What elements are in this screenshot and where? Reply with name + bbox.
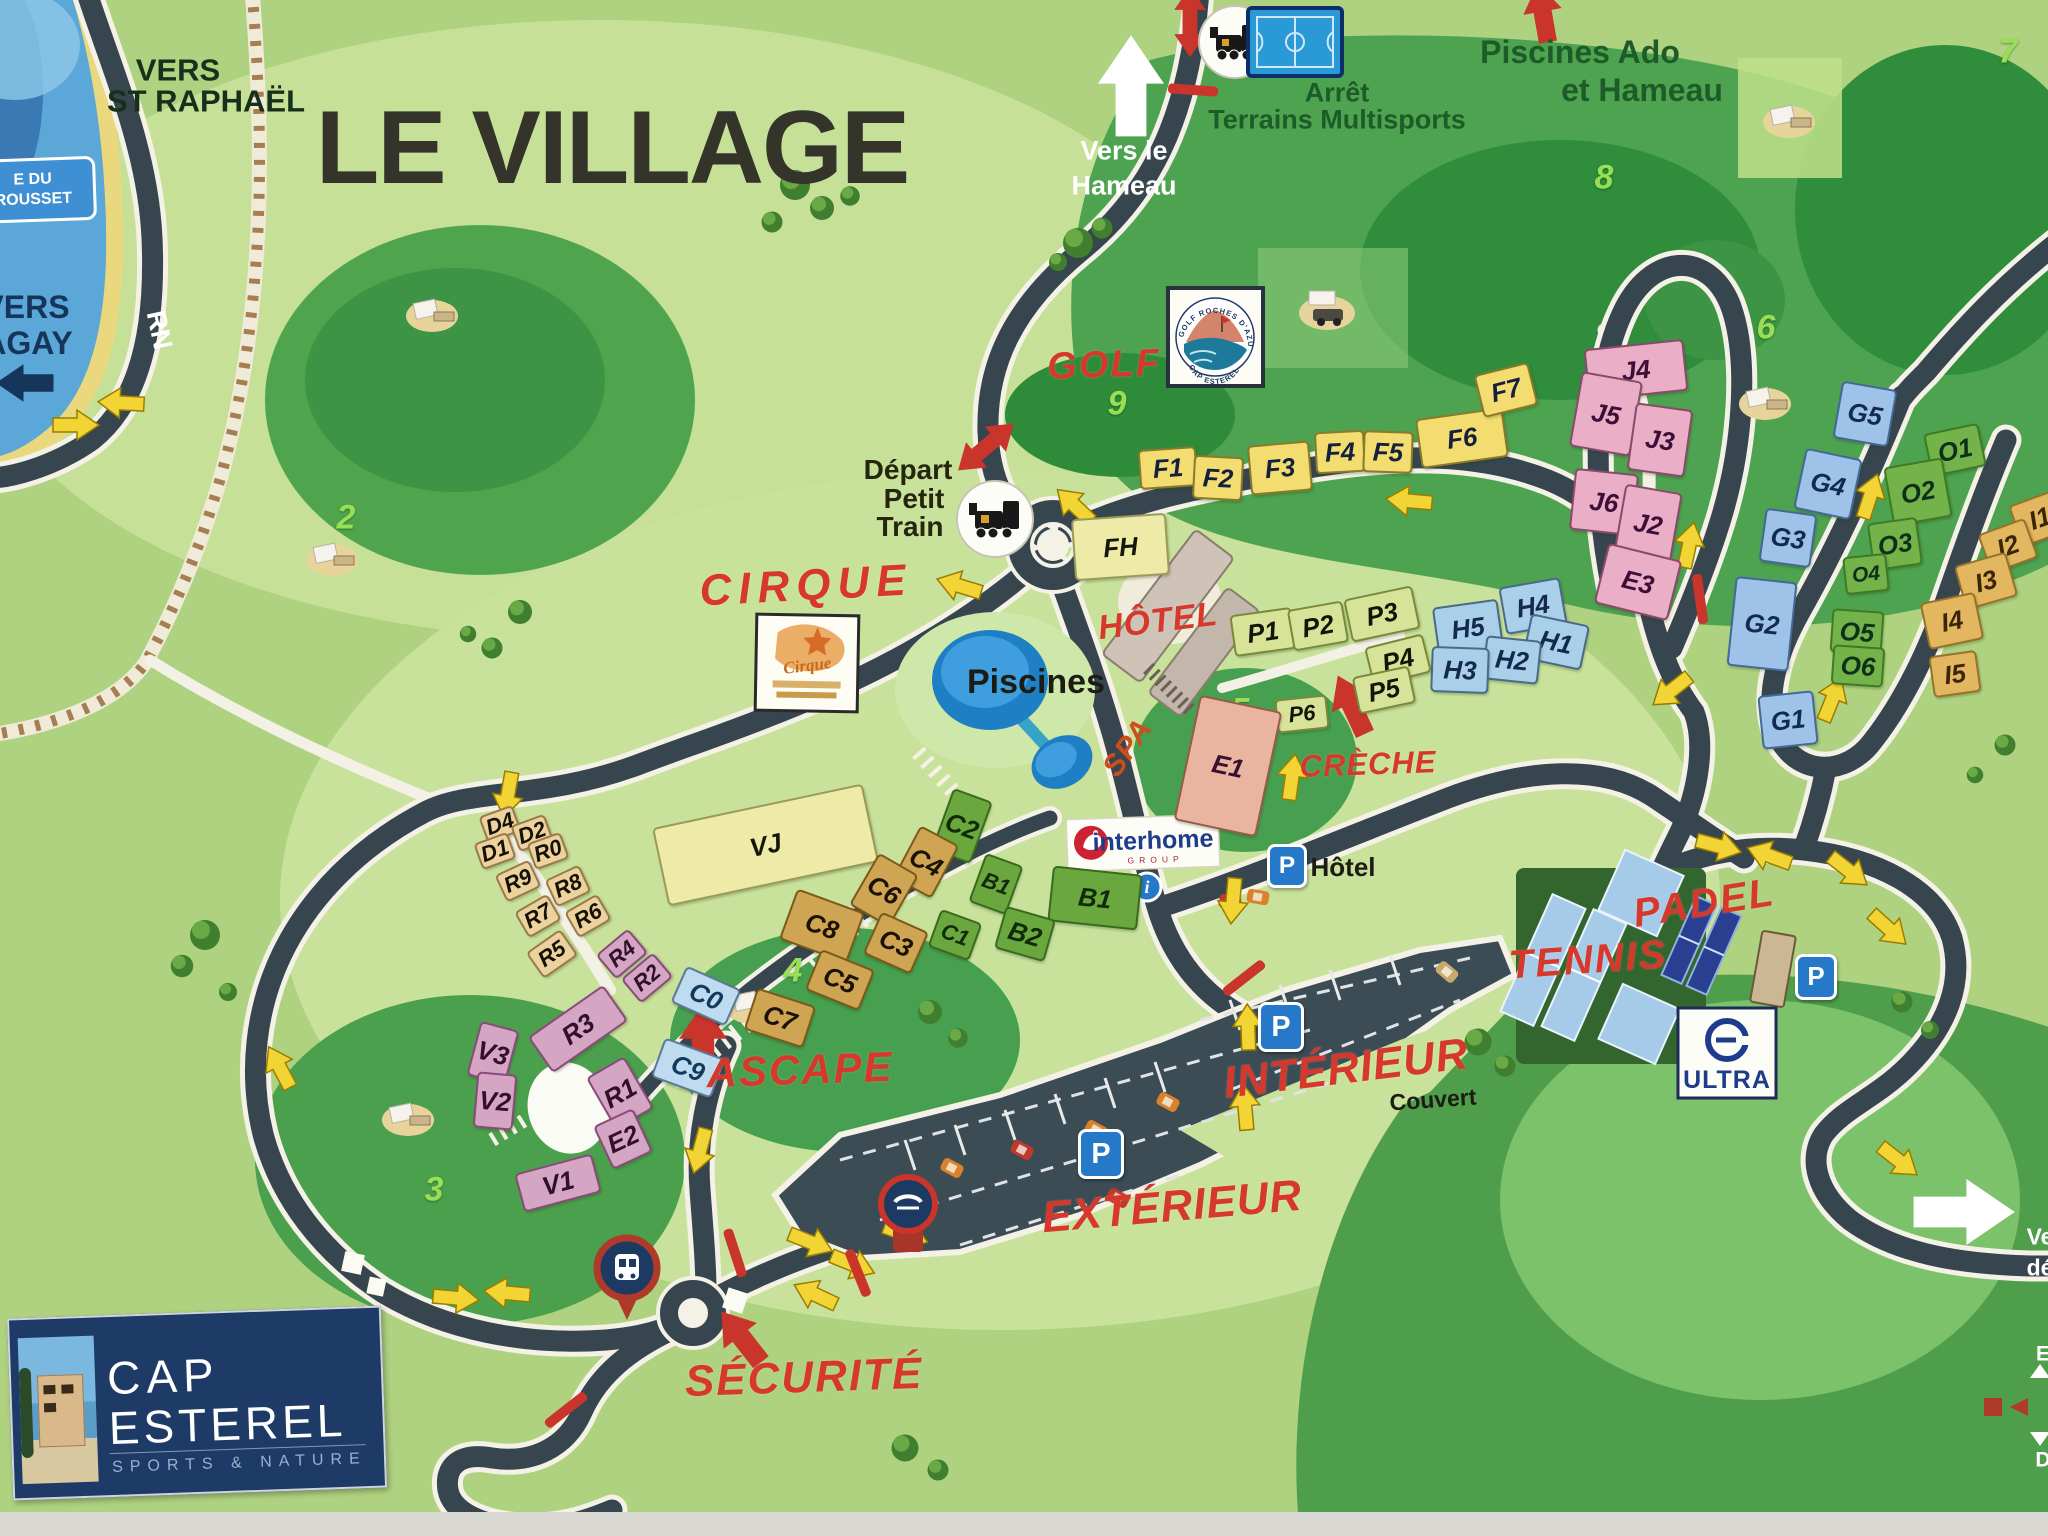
interhome-sub-text: GROUP (1127, 854, 1183, 866)
building-label: G5 (1846, 398, 1885, 430)
building-g2: G2 (1726, 576, 1797, 672)
building-label: R1 (599, 1073, 641, 1112)
building-label: J3 (1644, 425, 1676, 455)
building-v2: V2 (473, 1071, 518, 1130)
poi-label-tennis: TENNIS (1507, 935, 1668, 986)
building-label: F4 (1324, 438, 1356, 466)
cirque-poster: Cirque (755, 614, 859, 712)
parking-sign-letter: P (1279, 852, 1295, 880)
photo-edge (0, 1512, 2048, 1536)
building-label: C2 (942, 808, 982, 844)
building-b1: B1 (1047, 865, 1142, 930)
building-label: I5 (1942, 660, 1967, 689)
golf-hole-8: 8 (1595, 159, 1614, 198)
golf-hole-2: 2 (337, 499, 356, 538)
building-f2: F2 (1192, 455, 1244, 502)
poi-label-golf: GOLF (1047, 344, 1162, 386)
multisport-court-icon (1248, 8, 1342, 76)
poi-label-securite: SÉCURITÉ (684, 1352, 924, 1404)
building-f5: F5 (1362, 430, 1413, 474)
building-label: G4 (1808, 468, 1847, 501)
golf-hole-9: 9 (1108, 385, 1127, 424)
svg-text:i: i (1144, 877, 1149, 897)
building-label: V2 (478, 1087, 512, 1116)
sign-arret-2: Terrains Multisports (1208, 107, 1466, 134)
building-label: P5 (1366, 674, 1403, 706)
building-label: O5 (1839, 618, 1875, 646)
parking-sign: P (1267, 844, 1307, 888)
poi-label-piscines: Piscines (967, 665, 1105, 699)
building-label: F1 (1152, 454, 1184, 482)
golf-hole-6: 6 (1757, 309, 1776, 348)
golf-hole-4: 4 (784, 952, 803, 991)
building-label: C0 (686, 977, 727, 1014)
building-label: O2 (1899, 476, 1938, 508)
building-label: C3 (876, 924, 917, 961)
building-h3: H3 (1430, 646, 1490, 694)
building-label: E2 (603, 1120, 643, 1157)
sign-vers-hameau-1: Vers le (1080, 138, 1167, 165)
building-label: H1 (1537, 626, 1575, 658)
building-o6: O6 (1831, 644, 1886, 688)
building-f3: F3 (1247, 440, 1313, 495)
building-o4: O4 (1842, 553, 1890, 595)
building-label: G1 (1769, 705, 1806, 734)
poi-label-parking-hotel: Hôtel (1311, 854, 1376, 880)
building-label: V1 (539, 1166, 576, 1199)
building-label: P1 (1245, 617, 1280, 647)
building-label: F5 (1372, 438, 1403, 465)
interhome-text: interhome (1092, 825, 1214, 857)
building-f1: F1 (1138, 446, 1199, 490)
parking-sign: P (1078, 1129, 1124, 1179)
train-icon-roundabout (957, 481, 1033, 557)
building-label: O4 (1851, 562, 1881, 586)
map-title: LE VILLAGE (316, 96, 908, 200)
building-label: P3 (1364, 598, 1401, 630)
building-label: VJ (747, 829, 784, 861)
poi-label-ascape: ASCAPE (706, 1046, 894, 1095)
ultra-logo: ULTRA (1678, 1008, 1776, 1098)
building-label: H5 (1450, 613, 1487, 643)
building-label: C1 (938, 920, 972, 950)
beach-sign: E DU ROUSSET (0, 156, 97, 224)
cap-esterel-line1: CAP (106, 1347, 220, 1405)
building-label: G2 (1743, 609, 1780, 638)
building-o2: O2 (1883, 457, 1953, 527)
building-label: J5 (1589, 399, 1622, 430)
building-label: J6 (1588, 488, 1619, 517)
building-label: J2 (1631, 509, 1664, 540)
building-label: E3 (1619, 566, 1656, 599)
cap-esterel-photo (18, 1336, 99, 1485)
map-artwork: i GOLF ROCHES D'AZUR CAP ESTEREL Cirque … (0, 0, 2048, 1536)
poi-label-couvert: Couvert (1389, 1085, 1477, 1114)
sign-piscines-ado-1: Piscines Ado (1480, 36, 1680, 68)
sign-vers-agay-2: AGAY (0, 327, 73, 359)
building-label: I3 (1972, 566, 2000, 597)
building-g1: G1 (1757, 690, 1818, 750)
parking-sign-letter: P (1091, 1138, 1110, 1171)
building-label: R3 (557, 1009, 599, 1049)
golf-hole-3: 3 (425, 1171, 444, 1210)
building-label: P2 (1300, 610, 1336, 641)
building-label: C6 (863, 870, 905, 909)
parking-sign: P (1795, 954, 1837, 1000)
ultra-logo-text: ULTRA (1683, 1066, 1771, 1094)
resort-map: i GOLF ROCHES D'AZUR CAP ESTEREL Cirque … (0, 0, 2048, 1536)
sign-vers-st-raphael-2: ST RAPHAËL (107, 86, 305, 117)
building-j3: J3 (1627, 402, 1694, 477)
golf-hole-7: 7 (1999, 33, 2018, 72)
building-label: B1 (1077, 883, 1113, 912)
building-label: H3 (1443, 656, 1477, 683)
sign-depart-2: Petit (884, 485, 945, 513)
beach-sign-line2: ROUSSET (0, 189, 72, 212)
road-label-rn: RN (142, 308, 177, 352)
edge-label-ve: Ve (2027, 1226, 2048, 1249)
building-label: B2 (1005, 917, 1044, 951)
sign-depart-3: Train (877, 513, 944, 541)
building-label: F3 (1264, 454, 1296, 483)
parking-sign: P (1258, 1002, 1304, 1052)
poi-label-creche: CRÈCHE (1299, 746, 1437, 782)
building-label: C7 (760, 1000, 800, 1035)
building-p6: P6 (1274, 694, 1329, 733)
beach-sign-line1: E DU (13, 169, 52, 190)
building-label: G3 (1769, 523, 1807, 554)
building-label: C5 (820, 962, 861, 999)
sign-arret-1: Arrêt (1305, 80, 1370, 107)
edge-label-de: dé (2027, 1257, 2048, 1280)
sign-vers-hameau-2: Hameau (1071, 173, 1176, 200)
building-label: V3 (474, 1036, 511, 1069)
building-label: I4 (1939, 606, 1966, 636)
building-g3: G3 (1758, 508, 1817, 569)
edge-label-e: E (2036, 1344, 2048, 1365)
building-label: B1 (979, 869, 1013, 899)
sign-depart-1: Départ (864, 456, 953, 484)
building-label: FH (1102, 533, 1138, 561)
parking-sign-letter: P (1271, 1011, 1290, 1044)
parking-sign-letter: P (1807, 963, 1824, 992)
building-label: P6 (1287, 702, 1316, 727)
building-label: F2 (1202, 464, 1234, 492)
building-label: C8 (802, 908, 842, 944)
building-label: C9 (668, 1050, 708, 1086)
building-fh: FH (1070, 513, 1169, 581)
poi-label-cirque: CIRQUE (698, 558, 913, 613)
building-f4: F4 (1314, 430, 1366, 475)
building-label: O6 (1840, 652, 1876, 680)
building-i5: I5 (1928, 650, 1981, 698)
building-label: F6 (1445, 423, 1479, 453)
building-h2: H2 (1482, 635, 1542, 685)
sign-piscines-ado-2: et Hameau (1561, 74, 1723, 106)
edge-label-d: D (2035, 1450, 2048, 1471)
cap-esterel-logo: CAP ESTEREL SPORTS & NATURE (7, 1306, 387, 1501)
cap-esterel-tagline: SPORTS & NATURE (112, 1450, 367, 1477)
building-g5: G5 (1832, 381, 1897, 448)
sign-vers-agay-1: VERS (0, 291, 70, 323)
building-label: E1 (1210, 750, 1247, 782)
building-label: F7 (1488, 374, 1524, 407)
sign-vers-st-raphael-1: VERS (136, 55, 220, 86)
roundabout-securite (669, 1289, 717, 1337)
terrain (0, 0, 2048, 1536)
building-label: H2 (1494, 645, 1530, 674)
